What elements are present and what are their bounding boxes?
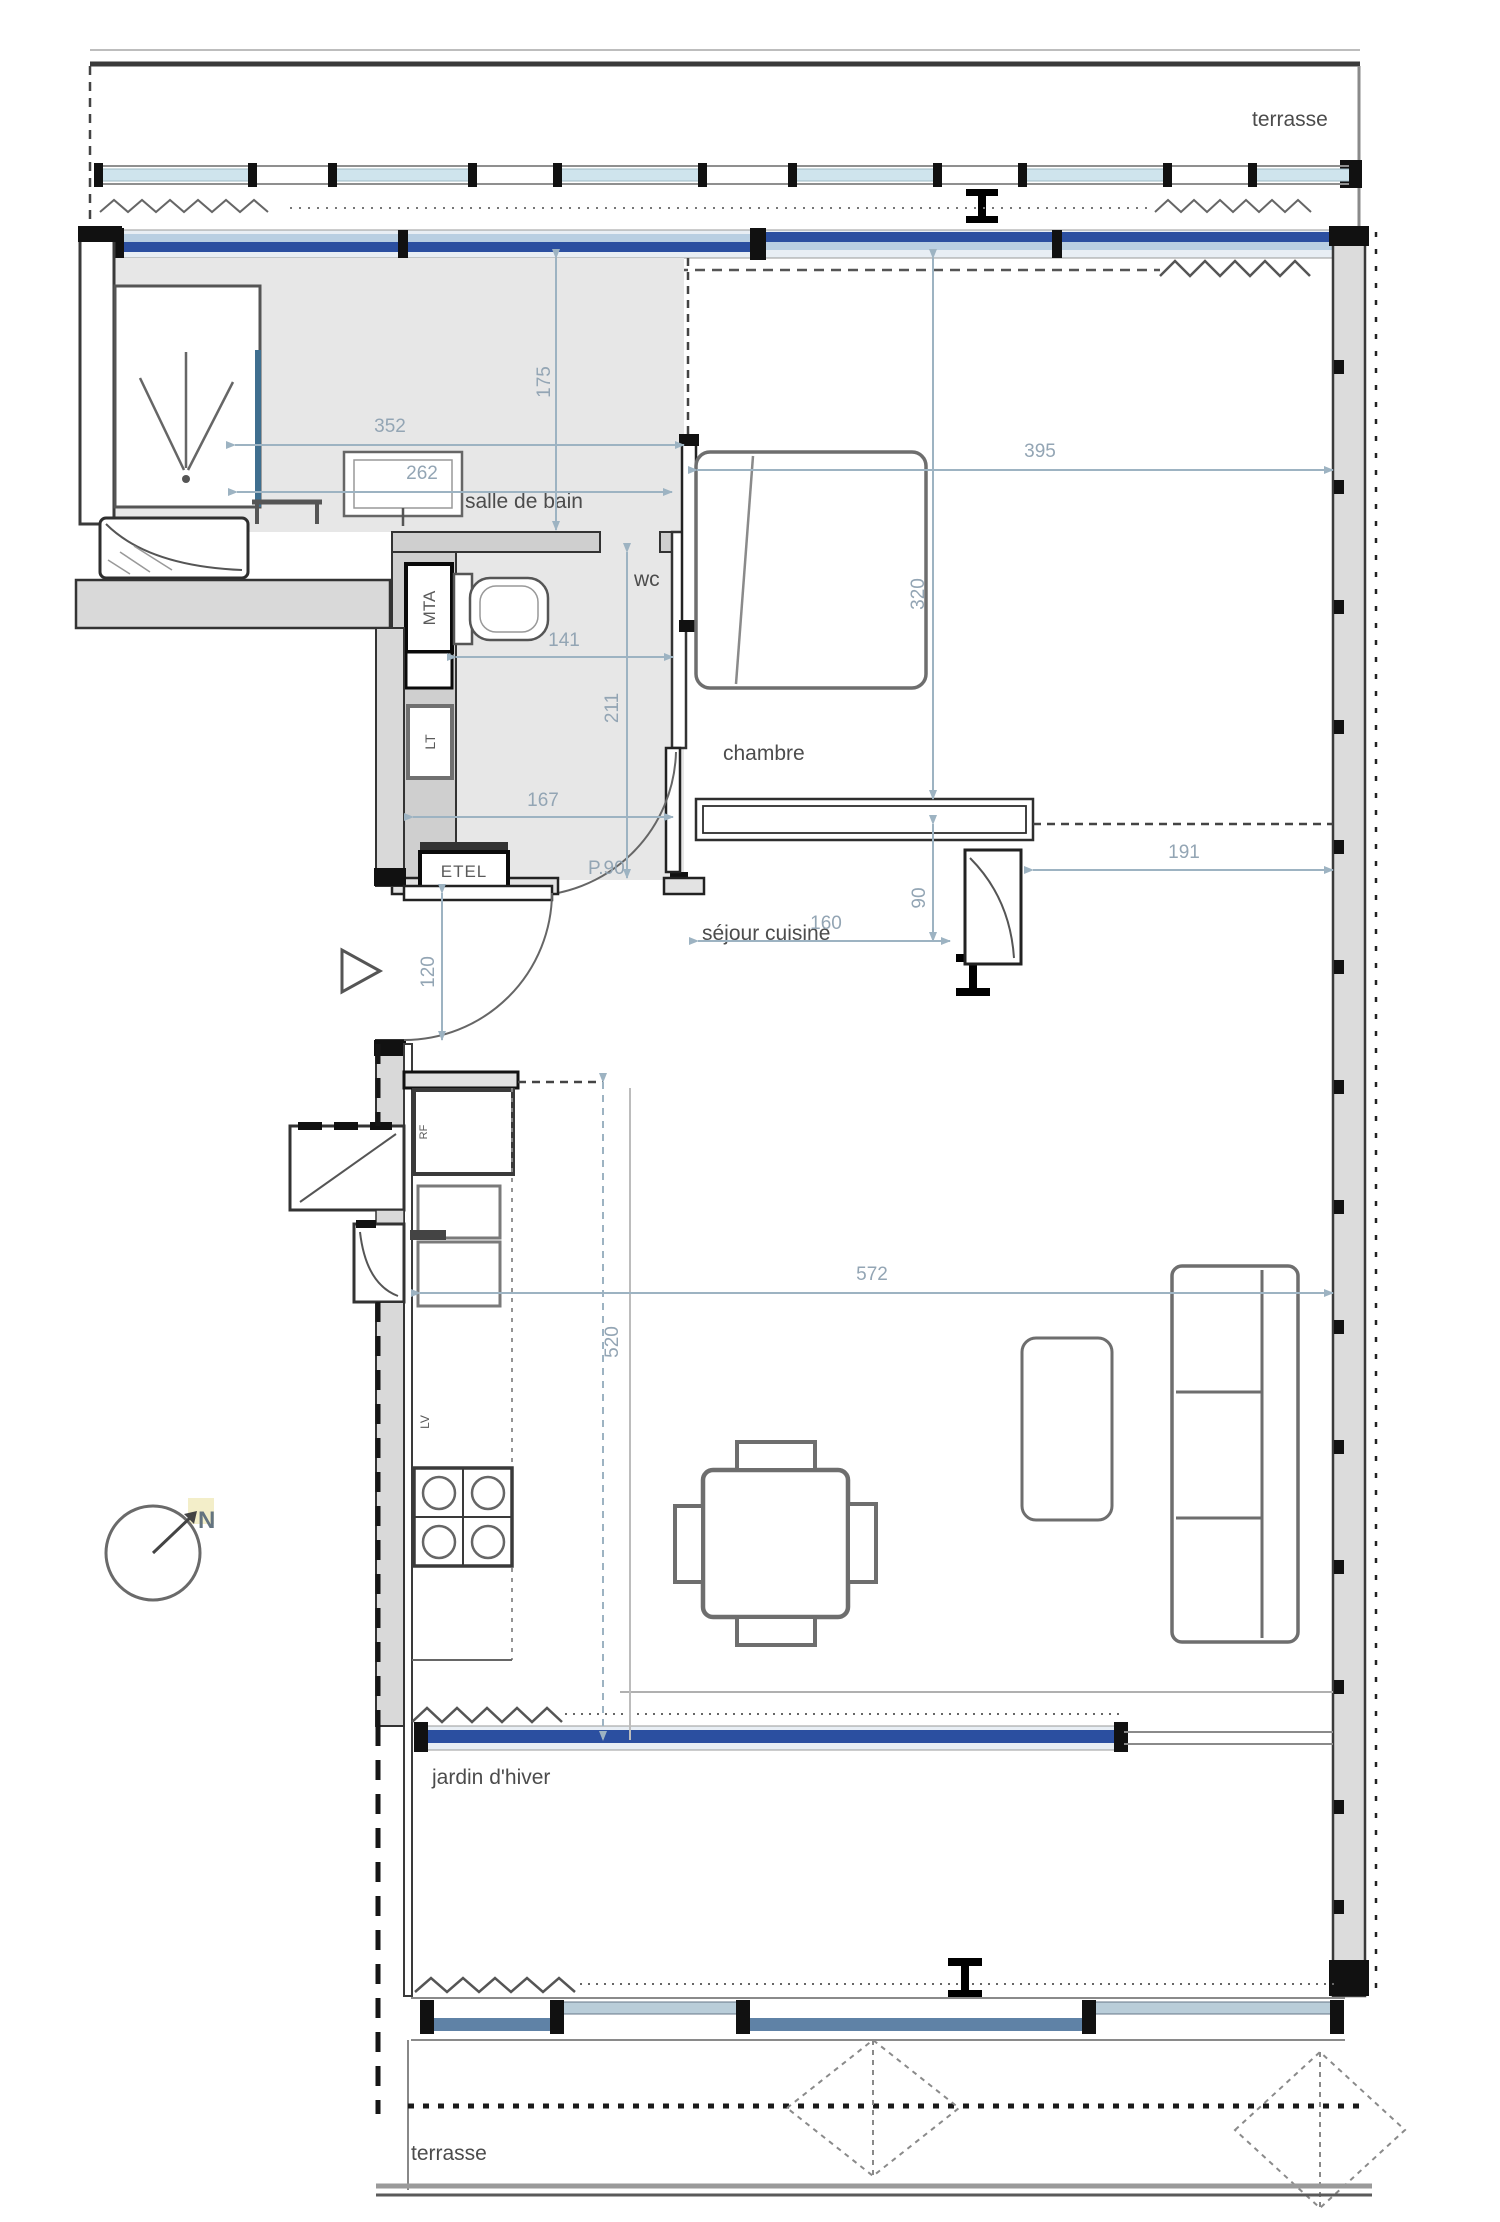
insulation-squiggle-left <box>100 200 268 212</box>
dim-352: 352 <box>374 416 406 437</box>
dim-262: 262 <box>406 463 438 484</box>
bath-window-bay <box>100 518 248 578</box>
dim-191: 191 <box>1168 842 1200 863</box>
bedroom-door-leaf <box>682 442 696 624</box>
floor-plan: terrasse <box>0 0 1500 2222</box>
chair-right <box>848 1504 876 1582</box>
sliding-door-diamonds <box>787 2040 1405 2208</box>
wc-door-leaf <box>666 748 680 872</box>
dim-141: 141 <box>548 630 580 651</box>
duct-shaft-label: MTA <box>420 590 439 625</box>
dim-160: 160 <box>810 913 842 934</box>
dim-90: 90 <box>909 887 930 908</box>
closet <box>965 850 1021 964</box>
vanity <box>344 452 462 526</box>
steel-column-top-icon <box>966 189 998 223</box>
dining-table <box>703 1470 848 1617</box>
dim-211: 211 <box>602 693 623 723</box>
window-bay-1 <box>290 1122 404 1210</box>
sofa <box>1172 1266 1298 1642</box>
chair-bottom <box>737 1617 815 1645</box>
dim-520: 520 <box>602 1326 623 1358</box>
winter-garden-label: jardin d'hiver <box>431 1766 550 1789</box>
winter-garden-glazing: jardin d'hiver <box>412 1692 1333 1789</box>
steel-column-bottom-icon <box>948 1958 982 1998</box>
north-label: N <box>198 1507 215 1534</box>
wc-label: wc <box>633 568 660 591</box>
shower <box>115 286 260 507</box>
living-room: séjour cuisine <box>518 922 1298 1740</box>
dresser <box>696 799 1033 840</box>
bath-wc-wall-a <box>392 532 600 552</box>
bed <box>696 452 926 688</box>
duct-shaft2-label: LT <box>422 734 438 750</box>
chair-top <box>737 1442 815 1470</box>
dishwasher-label: LV <box>418 1415 432 1429</box>
toilet <box>454 574 548 644</box>
compass-needle <box>153 1515 193 1553</box>
kitchen-wall-stub <box>404 1072 518 1088</box>
dim-120: 120 <box>418 956 439 988</box>
chair-left <box>675 1506 703 1582</box>
bathroom-south-wall <box>76 580 390 628</box>
terrace-railing <box>94 163 1358 187</box>
south-facade <box>411 1958 1345 2040</box>
terrace-bottom-label: terrasse <box>411 2142 487 2165</box>
dim-395: 395 <box>1024 441 1056 462</box>
cooktop <box>414 1468 512 1566</box>
coffee-table <box>1022 1338 1112 1520</box>
floor-plan-drawing: terrasse <box>0 0 1500 2222</box>
dim-167: 167 <box>527 790 559 811</box>
electrical-panel-label: ETEL <box>441 862 488 881</box>
terrace-bottom: terrasse <box>376 2040 1405 2208</box>
east-wall <box>1329 226 1376 1996</box>
terrace-top-label: terrasse <box>1252 108 1328 131</box>
dim-320: 320 <box>908 578 929 610</box>
dim-572: 572 <box>856 1264 888 1285</box>
window-bay-2 <box>354 1220 404 1302</box>
entry-arrow-icon <box>342 950 380 992</box>
terrace-top: terrasse <box>90 50 1362 232</box>
kitchen-cabinet-2 <box>418 1242 500 1306</box>
fridge-label: RF <box>418 1124 430 1139</box>
insulation-squiggle-right <box>1155 200 1311 212</box>
kitchen: RF LV <box>290 1044 518 2114</box>
door-ref-label: P.90 <box>588 858 625 879</box>
bedroom: chambre <box>679 258 1333 964</box>
bedroom-label: chambre <box>723 742 805 765</box>
bathroom-label: salle de bain <box>465 490 583 513</box>
dim-175: 175 <box>534 366 555 398</box>
north-compass: N <box>106 1498 215 1600</box>
entry-door-leaf <box>404 886 552 900</box>
